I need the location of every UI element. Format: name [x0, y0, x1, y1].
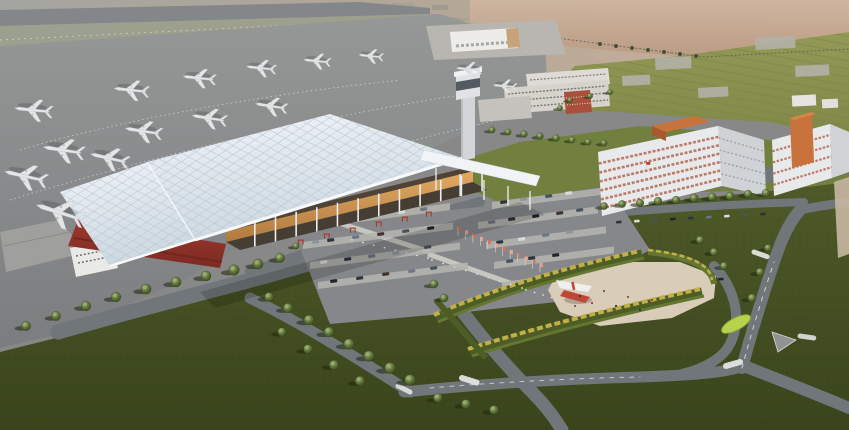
- car: [718, 278, 724, 281]
- tree: [531, 133, 543, 140]
- field-shed: [698, 86, 728, 98]
- car: [724, 215, 730, 218]
- tree: [515, 131, 527, 138]
- rendering-canvas: Aerial architectural rendering of a regi…: [0, 0, 849, 430]
- person: [579, 295, 581, 297]
- bollard: [487, 277, 489, 279]
- bollard: [551, 297, 553, 299]
- tree: [288, 243, 299, 250]
- rear-white-block: [792, 94, 817, 106]
- bollard: [534, 292, 536, 294]
- car: [616, 221, 622, 224]
- bollard: [416, 255, 418, 257]
- tree: [684, 194, 698, 202]
- tree: [702, 193, 716, 201]
- bollard: [499, 280, 501, 282]
- red-flag: [646, 162, 650, 165]
- bollard: [454, 266, 456, 268]
- car: [652, 219, 658, 222]
- field-shed: [795, 64, 830, 77]
- bollard: [510, 284, 512, 286]
- bollard: [521, 287, 523, 289]
- bollard: [525, 289, 527, 291]
- tree: [484, 127, 495, 134]
- person: [639, 309, 641, 311]
- person: [591, 302, 593, 304]
- car: [742, 214, 748, 217]
- person: [651, 299, 653, 301]
- person: [615, 305, 617, 307]
- car: [706, 216, 712, 219]
- bollard: [442, 263, 444, 265]
- person: [627, 296, 629, 298]
- airport-rendering: Aerial architectural rendering of a regi…: [0, 0, 849, 430]
- cargo-annex: [506, 28, 520, 48]
- hotel2-side: [830, 124, 849, 178]
- bollard: [431, 259, 433, 261]
- field-shed: [655, 56, 692, 70]
- bollard: [559, 299, 561, 301]
- crosswalk: [800, 336, 814, 338]
- cargo-facility: [426, 20, 566, 60]
- rear-white-block: [822, 99, 838, 109]
- field-shed: [755, 36, 796, 50]
- tree: [245, 259, 263, 269]
- tree: [547, 135, 559, 142]
- car: [688, 217, 694, 220]
- person: [603, 290, 605, 292]
- bollard: [362, 242, 364, 244]
- person: [574, 305, 576, 307]
- tower-shaft: [461, 89, 475, 161]
- car: [634, 220, 640, 223]
- bollard: [542, 294, 544, 296]
- field-shed: [622, 75, 650, 86]
- bollard: [476, 273, 478, 275]
- tree: [221, 265, 240, 276]
- admin-front-block: [478, 96, 532, 122]
- car: [760, 213, 766, 216]
- tree: [500, 129, 511, 136]
- distant-building: [432, 5, 448, 10]
- bollard: [427, 257, 429, 259]
- tree: [269, 253, 285, 262]
- hotel2-orange-tower: [790, 112, 814, 168]
- car: [670, 218, 676, 221]
- bollard: [465, 270, 467, 272]
- bollard: [351, 239, 353, 241]
- crosswalk: [726, 362, 740, 366]
